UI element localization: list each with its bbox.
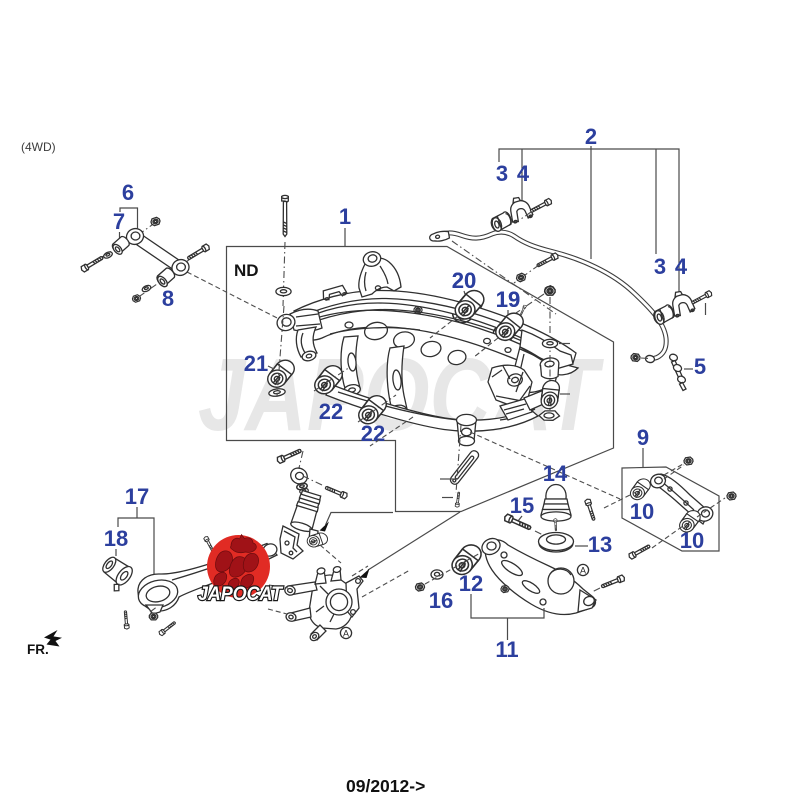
svg-text:22: 22	[361, 421, 385, 446]
svg-text:FR.: FR.	[27, 642, 49, 657]
svg-text:12: 12	[459, 571, 483, 596]
svg-text:4: 4	[517, 161, 530, 186]
svg-text:JAPOCAT: JAPOCAT	[198, 584, 283, 605]
svg-text:09/2012->: 09/2012->	[346, 776, 425, 796]
svg-text:ND: ND	[234, 261, 259, 280]
svg-text:11: 11	[495, 637, 518, 662]
svg-text:13: 13	[588, 532, 612, 557]
svg-text:20: 20	[452, 268, 476, 293]
svg-text:16: 16	[429, 588, 453, 613]
svg-text:14: 14	[543, 461, 568, 486]
svg-text:8: 8	[162, 286, 174, 311]
svg-text:22: 22	[319, 399, 343, 424]
svg-text:17: 17	[125, 484, 149, 509]
svg-text:3: 3	[496, 161, 508, 186]
svg-text:18: 18	[104, 526, 128, 551]
svg-text:9: 9	[637, 425, 649, 450]
svg-text:6: 6	[122, 180, 134, 205]
svg-text:2: 2	[585, 124, 597, 149]
svg-text:10: 10	[630, 499, 654, 524]
svg-text:7: 7	[113, 209, 125, 234]
svg-text:3: 3	[654, 254, 666, 279]
svg-text:(4WD): (4WD)	[21, 140, 56, 154]
svg-text:1: 1	[339, 204, 351, 229]
svg-text:4: 4	[675, 254, 688, 279]
svg-text:10: 10	[680, 528, 704, 553]
svg-text:15: 15	[510, 493, 534, 518]
svg-text:19: 19	[496, 287, 520, 312]
svg-text:5: 5	[694, 354, 706, 379]
svg-text:21: 21	[244, 351, 268, 376]
